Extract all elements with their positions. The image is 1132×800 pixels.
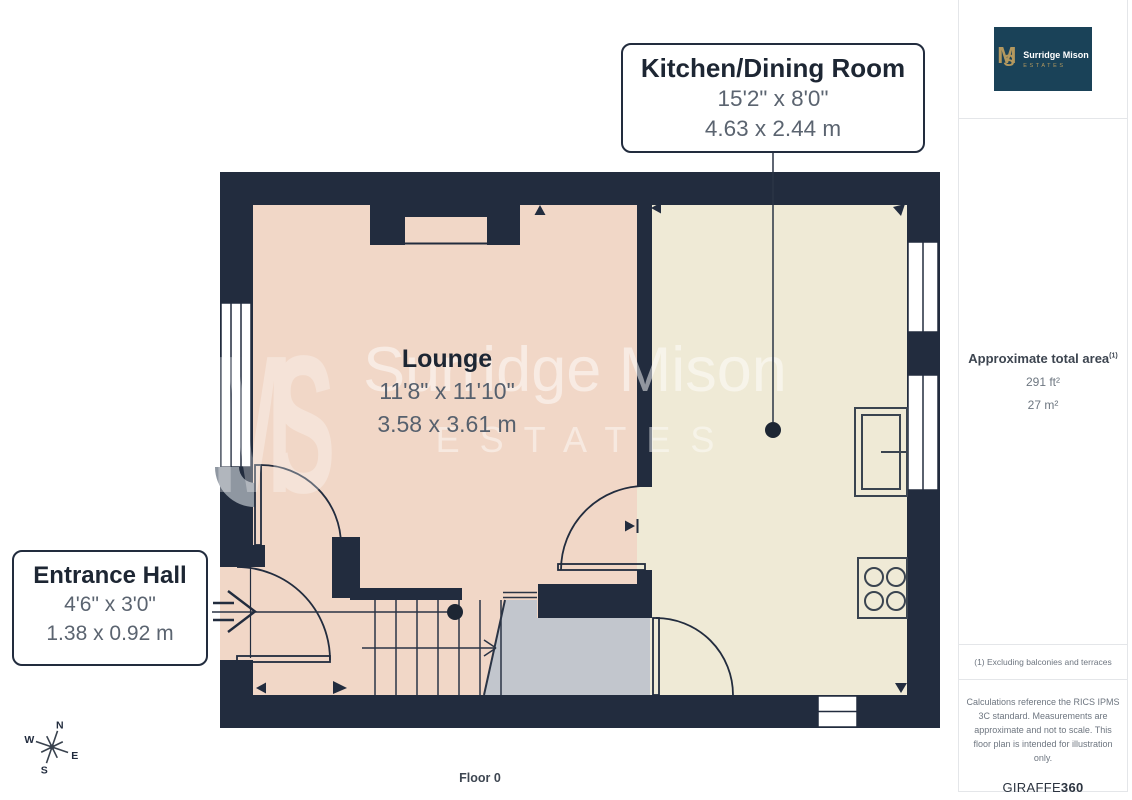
front-door-opening <box>220 567 253 660</box>
watermark-monogram: MS <box>212 314 332 534</box>
floorplan-page: MS Surridge Mison ESTATES <box>0 0 1132 800</box>
agency-logo: M S Surridge Mison ESTATES <box>994 27 1092 91</box>
agency-subtitle: ESTATES <box>1023 63 1089 69</box>
total-area-metric: 27 m² <box>1028 398 1059 412</box>
floor-label: Floor 0 <box>420 771 540 785</box>
entrance-hall-callout: Entrance Hall 4'6" x 3'0" 1.38 x 0.92 m <box>12 550 208 666</box>
total-area-footnote-marker: (1) <box>1109 353 1118 360</box>
total-area-section: Approximate total area(1) 291 ft² 27 m² <box>959 119 1127 645</box>
entrance-hall-name: Entrance Hall <box>14 562 206 591</box>
hall-label-anchor-dot <box>447 604 463 620</box>
lounge-room-dims-metric: 3.58 x 3.61 m <box>330 410 564 440</box>
kitchen-room-dims-imperial: 15'2" x 8'0" <box>623 84 923 114</box>
fireplace-recess <box>405 217 487 245</box>
disclaimer-section: Calculations reference the RICS IPMS 3C … <box>959 680 1127 795</box>
compass-east-label: E <box>71 750 78 762</box>
kitchen-room-name: Kitchen/Dining Room <box>623 54 923 84</box>
lounge-room-label: Lounge 11'8" x 11'10" 3.58 x 3.61 m <box>330 345 564 440</box>
total-area-label: Approximate total area(1) <box>968 351 1117 366</box>
total-area-label-text: Approximate total area <box>968 351 1109 366</box>
brand-suffix: 360 <box>1061 780 1084 795</box>
compass-south-label: S <box>41 765 48 777</box>
compass-rose-icon: N E S W <box>24 719 78 776</box>
agency-name: Surridge Mison <box>1023 50 1089 60</box>
lounge-room-name: Lounge <box>330 345 564 374</box>
monogram-s: S <box>1003 51 1014 71</box>
logo-section: M S Surridge Mison ESTATES <box>959 0 1127 119</box>
entrance-hall-dims-imperial: 4'6" x 3'0" <box>14 591 206 620</box>
entrance-hall-dims-metric: 1.38 x 0.92 m <box>14 620 206 649</box>
total-area-imperial: 291 ft² <box>1026 375 1060 389</box>
info-sidebar: M S Surridge Mison ESTATES Approximate t… <box>958 0 1128 792</box>
area-footnote: (1) Excluding balconies and terraces <box>959 645 1127 680</box>
kitchen-room-dims-metric: 4.63 x 2.44 m <box>623 114 923 144</box>
compass-west-label: W <box>24 734 34 746</box>
kitchen-label-anchor-dot <box>765 422 781 438</box>
kitchen-room-callout: Kitchen/Dining Room 15'2" x 8'0" 4.63 x … <box>621 43 925 153</box>
disclaimer-text: Calculations reference the RICS IPMS 3C … <box>966 696 1120 766</box>
brand-name: GIRAFFE <box>1002 780 1060 795</box>
giraffe360-brand: GIRAFFE360 <box>959 780 1127 795</box>
compass-north-label: N <box>56 719 64 731</box>
agency-monogram-icon: M S <box>997 41 1019 77</box>
lounge-room-dims-imperial: 11'8" x 11'10" <box>330 377 564 407</box>
